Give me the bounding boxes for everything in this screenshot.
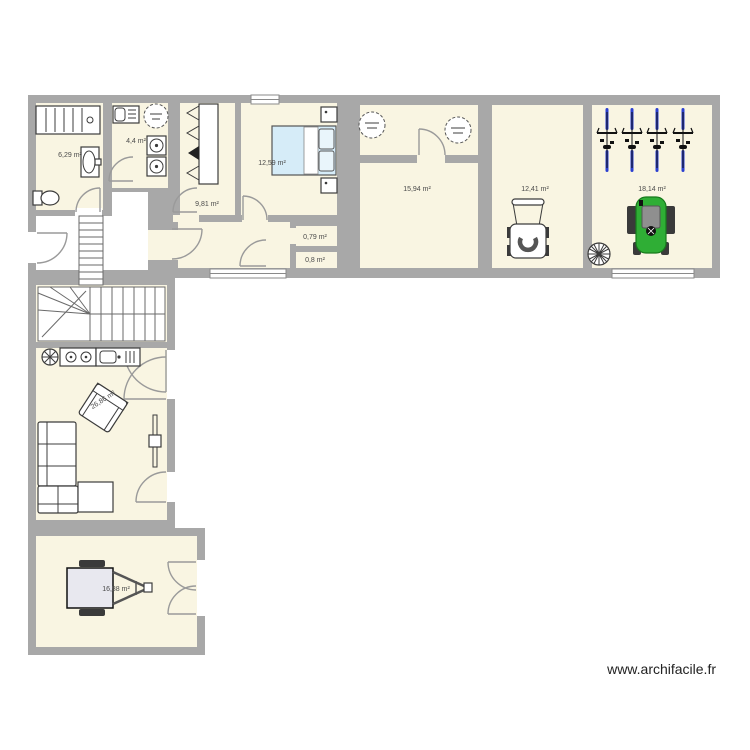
label-garage: 16,88 m² <box>102 586 130 593</box>
stove-icon[interactable] <box>60 348 96 366</box>
label-wc: 0,79 m² <box>303 234 327 241</box>
sofa-icon[interactable] <box>38 422 78 513</box>
label-storage: 12,41 m² <box>521 186 549 193</box>
label-closet: 0,8 m² <box>305 257 326 264</box>
water-heater-icon[interactable] <box>359 112 385 138</box>
window-bike-garage[interactable] <box>612 269 694 278</box>
bathtub-icon[interactable] <box>36 106 100 134</box>
nightstand-icon[interactable] <box>321 107 337 122</box>
floor-plan: 6,29 m² 4,4 m² 9,81 m² 12,59 m² 15,94 m²… <box>0 0 750 750</box>
staircase-upper[interactable] <box>79 216 103 285</box>
label-bedroom: 12,59 m² <box>258 160 286 167</box>
toilet-icon[interactable] <box>33 191 59 205</box>
extractor-fan-icon[interactable] <box>42 349 58 365</box>
staircase-winder[interactable] <box>38 287 165 341</box>
bathroom-sink-icon[interactable] <box>81 147 101 177</box>
laundry-sink-icon[interactable] <box>113 106 139 123</box>
bed-icon[interactable] <box>272 126 336 175</box>
label-hall: 15,94 m² <box>403 186 431 193</box>
label-bathroom: 6,29 m² <box>58 152 82 159</box>
room-floors <box>36 103 712 647</box>
label-laundry: 4,4 m² <box>126 138 147 145</box>
fan-rosette-icon[interactable] <box>588 243 610 265</box>
room-hall-main[interactable] <box>360 163 478 268</box>
floor-plan-svg: 6,29 m² 4,4 m² 9,81 m² 12,59 m² 15,94 m²… <box>0 0 750 750</box>
nightstand-icon[interactable] <box>321 178 337 193</box>
label-dressing: 9,81 m² <box>195 201 219 208</box>
coffee-table-icon[interactable] <box>78 482 113 512</box>
kitchen-sink-icon[interactable] <box>96 348 140 366</box>
dryer-icon[interactable] <box>147 157 166 176</box>
water-heater-icon[interactable] <box>144 104 168 128</box>
water-heater-icon[interactable] <box>445 117 471 143</box>
label-bike-garage: 18,14 m² <box>638 186 666 193</box>
window-corridor[interactable] <box>210 269 286 278</box>
window-bedroom[interactable] <box>251 95 279 104</box>
watermark: www.archifacile.fr <box>607 661 716 677</box>
washing-machine-icon[interactable] <box>147 136 166 155</box>
